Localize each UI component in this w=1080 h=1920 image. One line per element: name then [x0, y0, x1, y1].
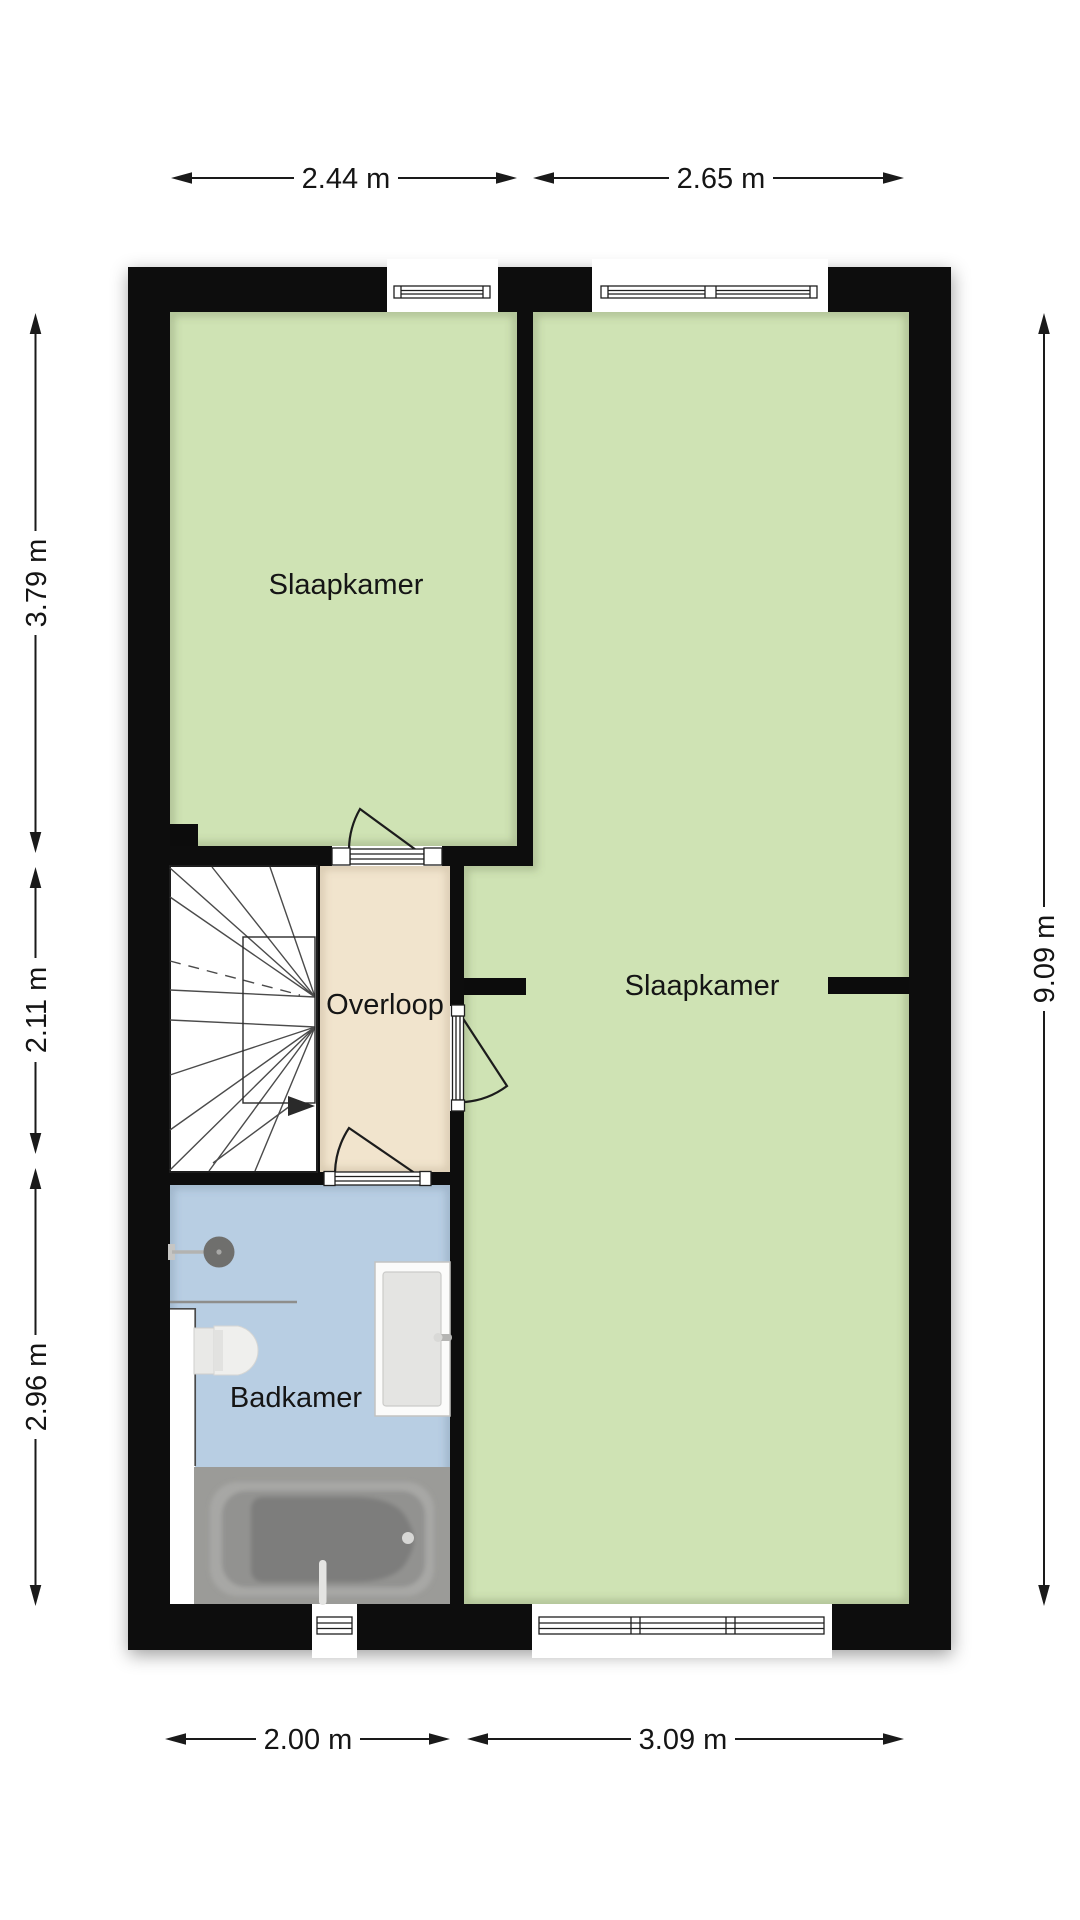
svg-text:2.96 m: 2.96 m — [21, 1343, 53, 1432]
svg-text:Slaapkamer: Slaapkamer — [625, 970, 780, 1002]
svg-text:2.00 m: 2.00 m — [264, 1724, 353, 1756]
svg-text:3.09 m: 3.09 m — [639, 1724, 728, 1756]
svg-text:2.11 m: 2.11 m — [21, 967, 53, 1054]
svg-text:Badkamer: Badkamer — [230, 1382, 363, 1414]
svg-text:9.09 m: 9.09 m — [1029, 915, 1061, 1004]
svg-text:2.44 m: 2.44 m — [302, 163, 391, 195]
svg-text:3.79 m: 3.79 m — [21, 539, 53, 628]
svg-text:Slaapkamer: Slaapkamer — [269, 569, 424, 601]
svg-text:Overloop: Overloop — [326, 989, 444, 1021]
svg-text:2.65 m: 2.65 m — [677, 163, 766, 195]
